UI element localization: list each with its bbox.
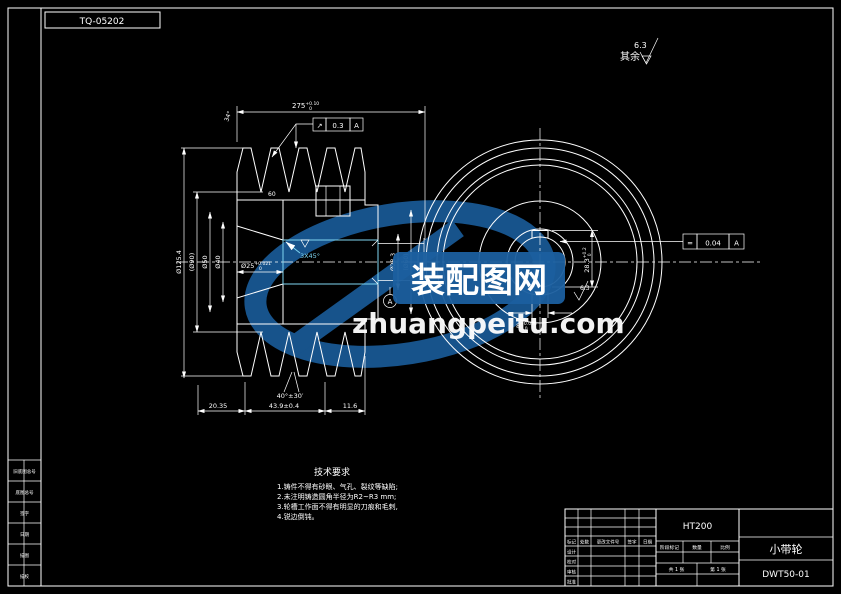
tech-req-title: 技术要求 xyxy=(314,466,350,478)
dim-od: Ø125.4 xyxy=(175,250,183,274)
material: HT200 xyxy=(683,522,713,532)
watermark-site-text: zhuangpeitu.com xyxy=(352,307,625,340)
strip-row-6: 描校 xyxy=(20,573,29,580)
tech-req-line-4: 4.锐边倒钝。 xyxy=(277,512,319,521)
strip-row-1: 旧底图总号 xyxy=(13,468,36,475)
tech-req-line-2: 2.未注明铸造圆角半径为R2~R3 mm; xyxy=(277,492,396,501)
sign-row-approve: 批准 xyxy=(567,579,576,586)
surface-note-label: 其余 xyxy=(620,50,640,63)
strip-row-3: 签字 xyxy=(20,510,29,517)
drawing-canvas: TQ-05202 其余 6.3 xyxy=(0,0,841,594)
dim-keyway-roughness: 6.3 xyxy=(580,285,590,292)
drawing-number: DWT50-01 xyxy=(762,570,809,580)
strip-row-4: 日期 xyxy=(20,532,29,538)
dim-chamfer: 3X45° xyxy=(300,252,320,260)
rev-header-docno: 更改文件号 xyxy=(597,539,620,546)
gdt-runout-symbol: ↗ xyxy=(317,122,323,130)
sign-row-check: 校对 xyxy=(567,559,576,566)
sign-row-design: 设计 xyxy=(567,549,576,556)
sheet-index: 第 1 张 xyxy=(710,566,726,573)
gdt-runout-value: 0.3 xyxy=(332,122,343,130)
dim-bottom-1: 20.35 xyxy=(209,402,228,410)
dim-hub-width: 60 xyxy=(268,191,276,198)
gdt-symmetry-value: 0.04 xyxy=(705,240,721,248)
dim-recess: Ø40 xyxy=(214,255,222,268)
datum-a-label: A xyxy=(388,298,393,306)
strip-row-2: 底图总号 xyxy=(16,489,34,496)
surface-note-value: 6.3 xyxy=(634,41,647,50)
watermark-badge: 装配图网 xyxy=(393,252,565,304)
mid-header-qty: 数量 xyxy=(692,544,702,551)
rev-header-date: 日期 xyxy=(643,540,652,546)
dim-groove-root: (Ø90) xyxy=(188,253,196,271)
strip-row-5: 描图 xyxy=(20,552,29,559)
gdt-symmetry-datum: A xyxy=(734,240,739,248)
mid-header-scale: 比例 xyxy=(720,544,730,551)
tech-req-line-1: 1.铸件不得有砂眼、气孔、裂纹等缺陷; xyxy=(277,482,398,491)
tech-req-line-3: 3.轮槽工作面不得有明显的刀痕和毛刺, xyxy=(277,502,398,511)
dim-bottom-3: 11.6 xyxy=(343,402,357,410)
sign-row-review: 审核 xyxy=(567,569,576,576)
rev-header-sign: 签字 xyxy=(628,539,637,546)
rev-header-count: 处数 xyxy=(580,539,589,546)
dim-web: Ø50 xyxy=(201,255,209,268)
rev-header-mark: 标记 xyxy=(567,539,576,546)
watermark-cn-text: 装配图网 xyxy=(411,261,547,301)
doc-number-top: TQ-05202 xyxy=(79,17,125,27)
gdt-runout-datum: A xyxy=(354,122,359,130)
mid-header-stage: 阶段标记 xyxy=(660,544,679,551)
sheet-count: 共 1 张 xyxy=(669,566,685,573)
dim-bottom-2: 43.9±0.4 xyxy=(269,402,299,410)
dim-groove-angle: 40°±30′ xyxy=(277,392,304,400)
cad-drawing-sheet: TQ-05202 其余 6.3 xyxy=(0,0,841,594)
gdt-symmetry-symbol: = xyxy=(687,240,693,248)
part-name: 小带轮 xyxy=(770,542,803,556)
